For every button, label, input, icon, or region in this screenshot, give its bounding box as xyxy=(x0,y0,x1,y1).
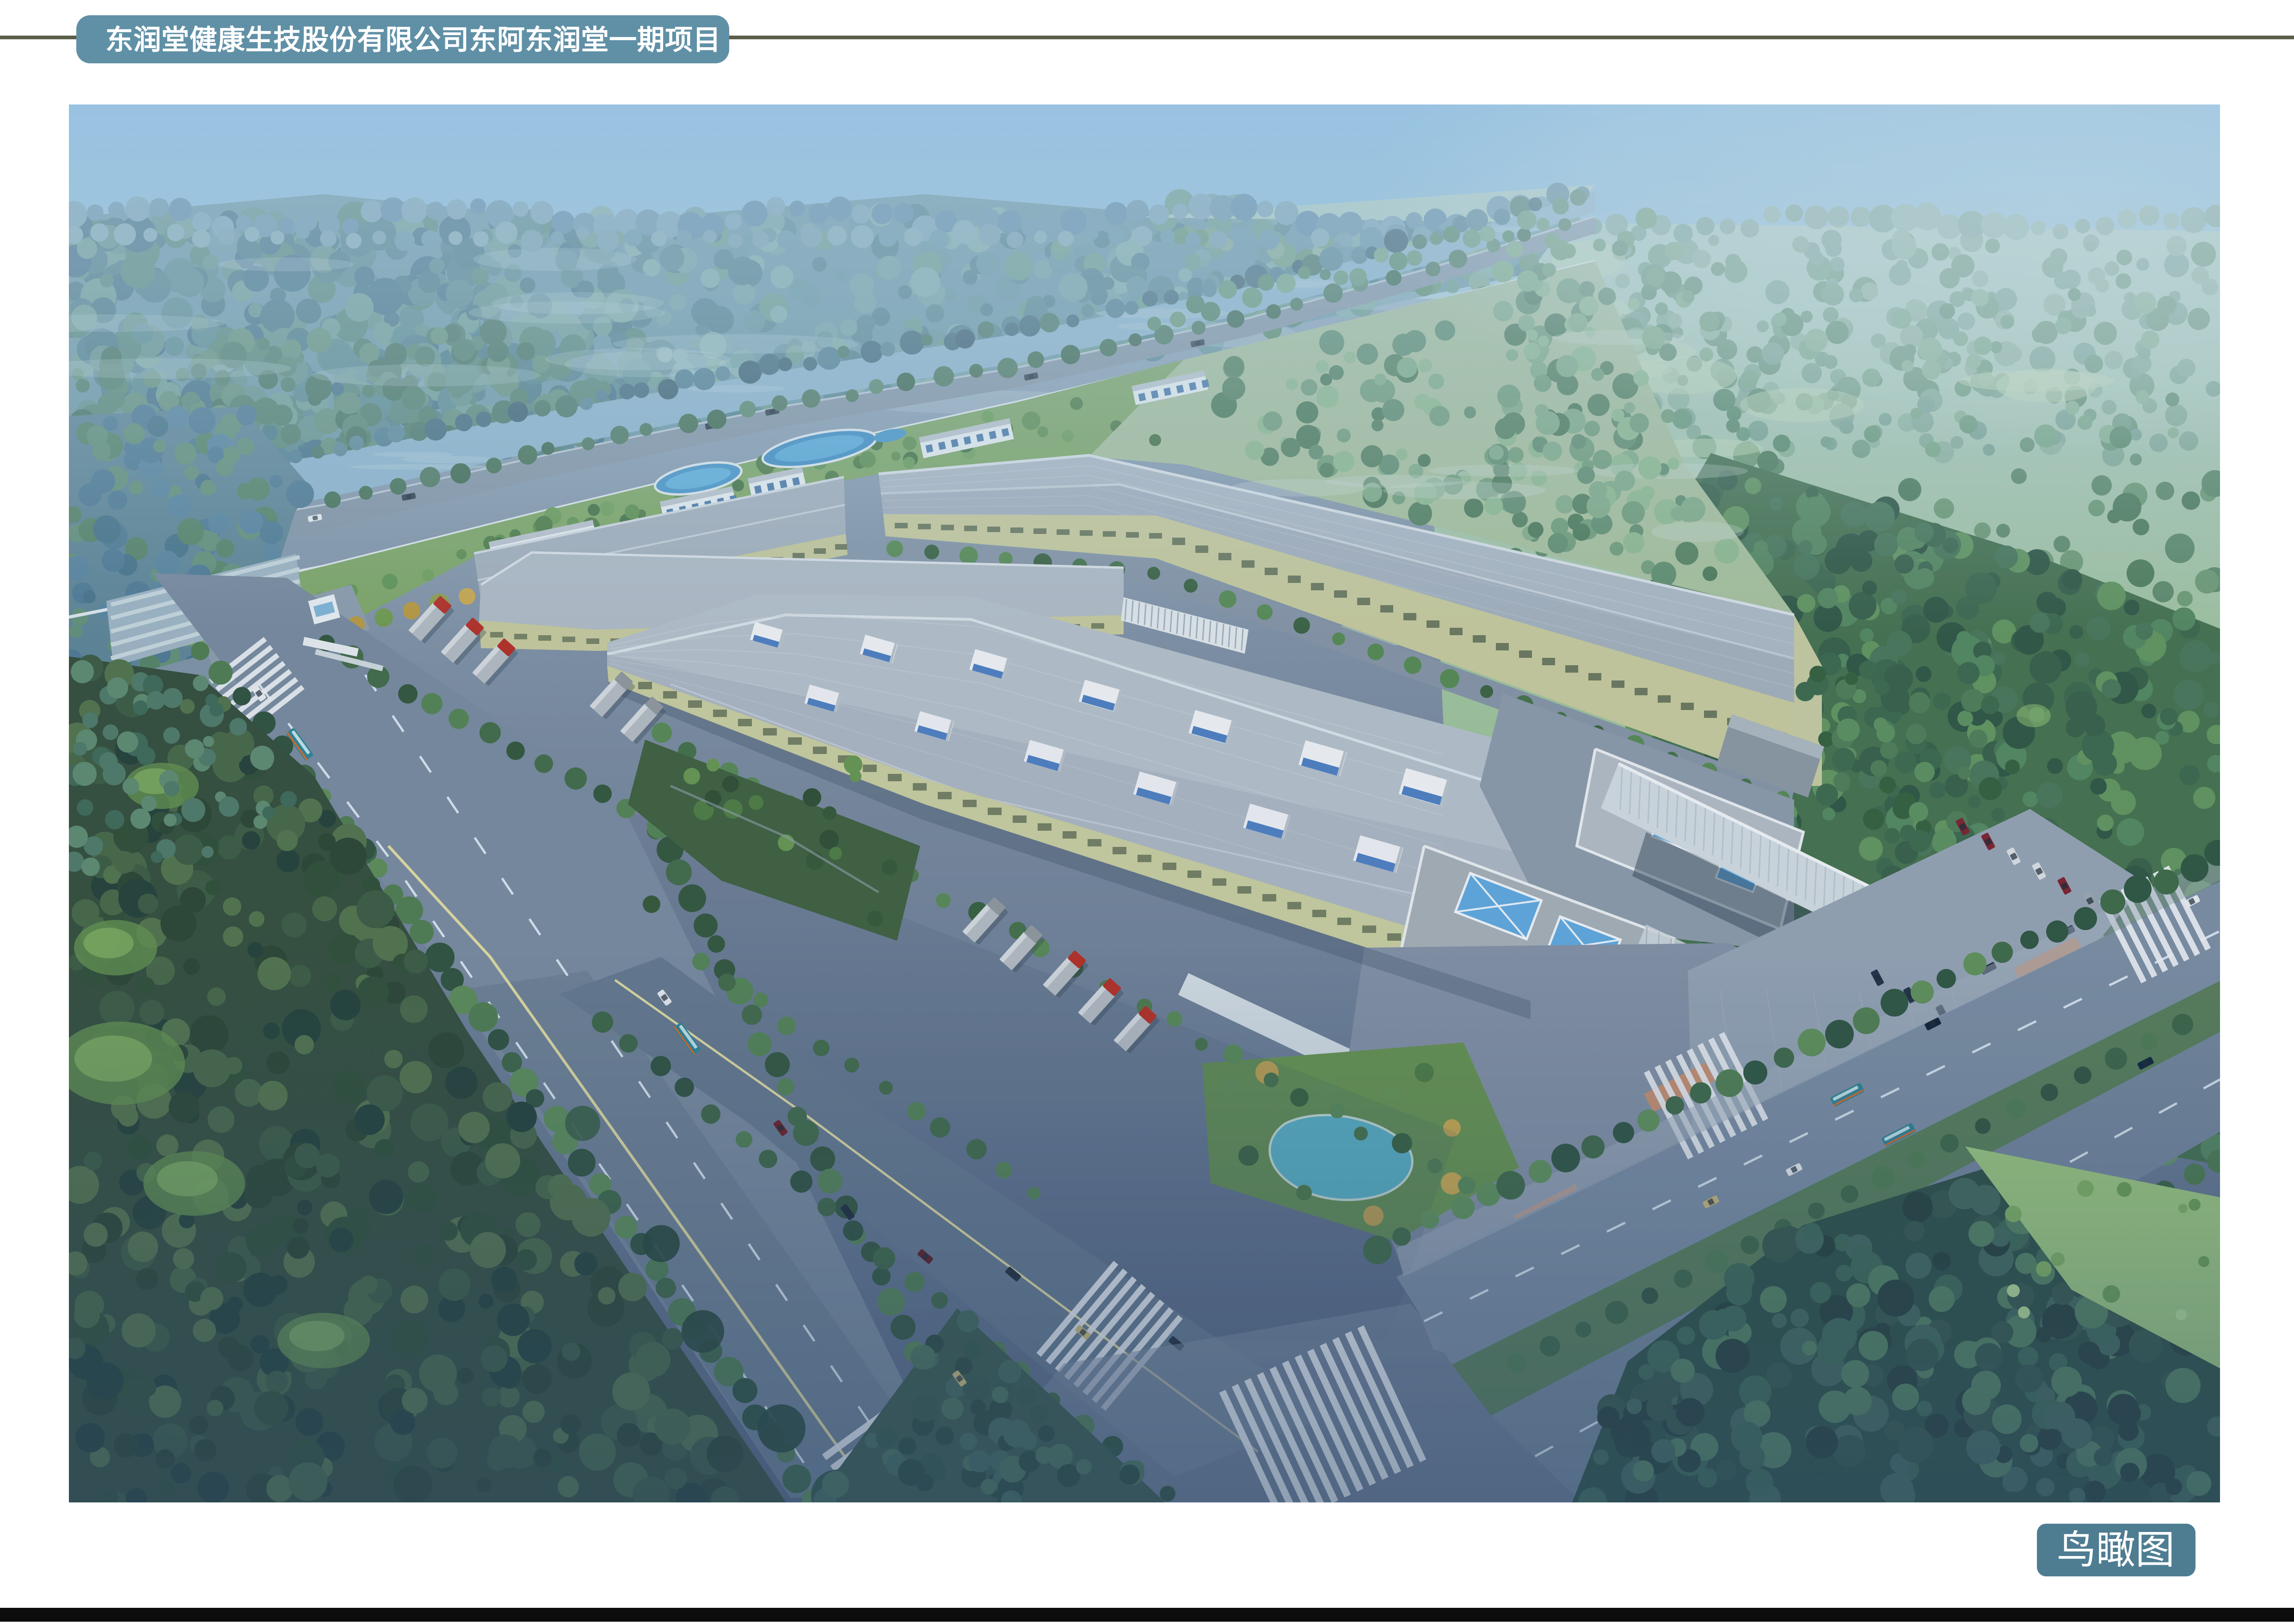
svg-text:鸟瞰图: 鸟瞰图 xyxy=(2057,1528,2175,1572)
svg-text:东润堂健康生技股份有限公司东阿东润堂一期项目: 东润堂健康生技股份有限公司东阿东润堂一期项目 xyxy=(105,25,721,55)
